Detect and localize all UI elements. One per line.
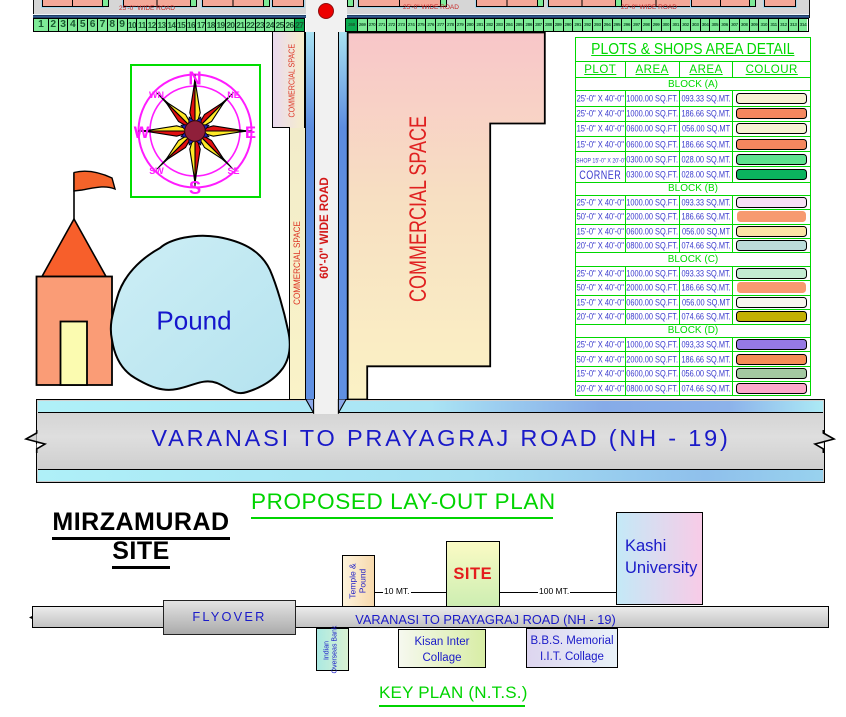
svg-text:Pound: Pound xyxy=(156,306,231,336)
svg-text:E: E xyxy=(245,124,256,142)
svg-text:SE: SE xyxy=(227,166,239,176)
svg-text:N: N xyxy=(188,67,201,88)
svg-text:SW: SW xyxy=(149,166,164,176)
svg-text:WN: WN xyxy=(149,90,164,100)
svg-text:NE: NE xyxy=(227,90,240,100)
svg-text:W: W xyxy=(134,124,150,142)
svg-text:S: S xyxy=(189,177,201,198)
